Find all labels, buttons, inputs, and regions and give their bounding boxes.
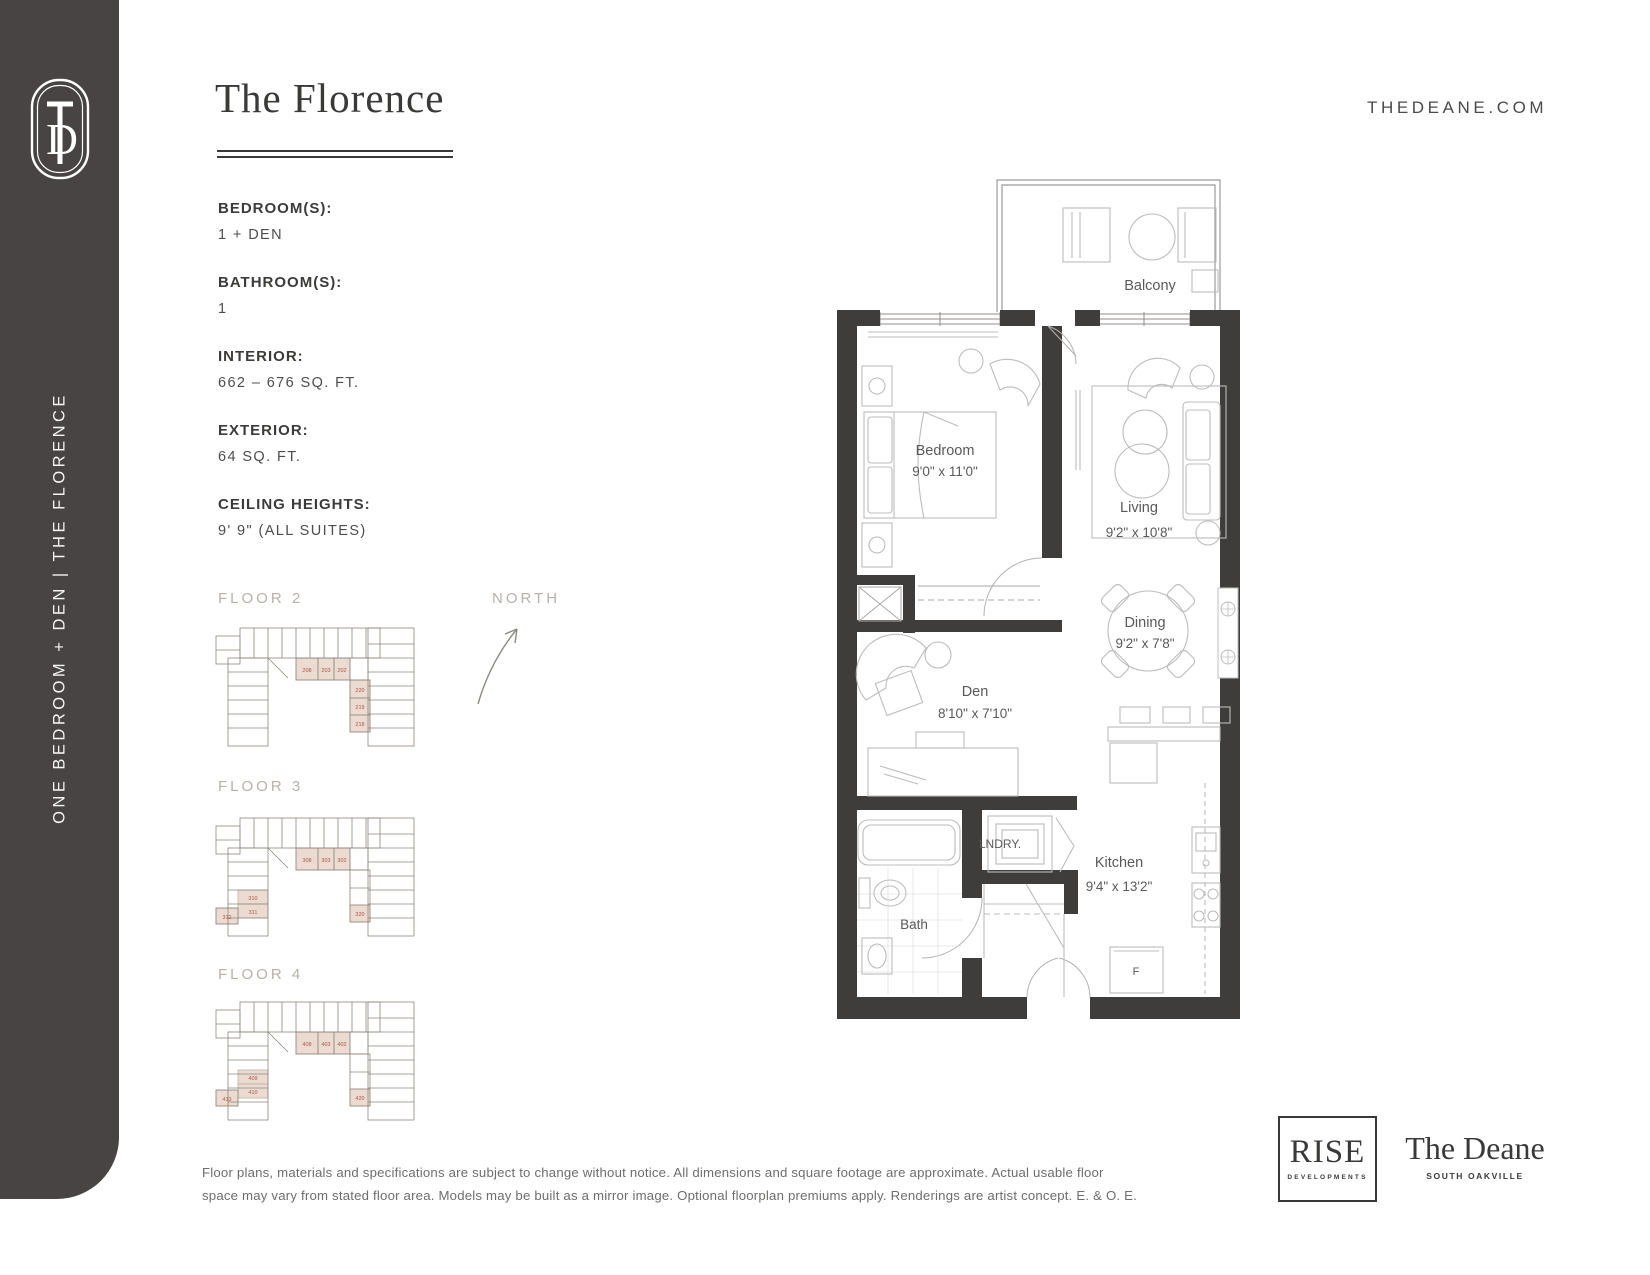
spec-bathrooms: BATHROOM(S): 1 bbox=[218, 274, 371, 317]
td-monogram-icon: D bbox=[30, 78, 90, 180]
dining-dims: 9'2" x 7'8" bbox=[1115, 636, 1174, 651]
rise-logo: RISE DEVELOPMENTS bbox=[1278, 1116, 1377, 1202]
svg-text:302: 302 bbox=[337, 858, 346, 864]
svg-text:208: 208 bbox=[302, 668, 311, 674]
spec-interior: INTERIOR: 662 – 676 SQ. FT. bbox=[218, 348, 371, 391]
balcony-label: Balcony bbox=[1124, 278, 1176, 294]
svg-text:320: 320 bbox=[355, 912, 364, 918]
living-dims: 9'2" x 10'8" bbox=[1106, 525, 1173, 540]
svg-text:413: 413 bbox=[222, 1097, 231, 1103]
svg-text:310: 310 bbox=[248, 896, 257, 902]
page-title: The Florence bbox=[215, 74, 444, 122]
rise-logo-sub: DEVELOPMENTS bbox=[1280, 1174, 1375, 1181]
bath-fixtures bbox=[857, 820, 962, 994]
svg-text:312: 312 bbox=[222, 915, 231, 921]
svg-text:403: 403 bbox=[321, 1042, 330, 1048]
spec-exterior: EXTERIOR: 64 SQ. FT. bbox=[218, 422, 371, 465]
disclaimer: Floor plans, materials and specification… bbox=[202, 1162, 1172, 1207]
bath-label: Bath bbox=[900, 917, 928, 932]
svg-text:420: 420 bbox=[355, 1096, 364, 1102]
shaft-closet bbox=[859, 586, 1040, 621]
svg-text:218: 218 bbox=[355, 722, 364, 728]
den-label: Den bbox=[962, 684, 989, 700]
balcony-walls bbox=[997, 180, 1220, 312]
floor-3-label: FLOOR 3 bbox=[218, 778, 303, 795]
deane-logo: The Deane SOUTH OAKVILLE bbox=[1404, 1130, 1546, 1181]
svg-text:219: 219 bbox=[355, 705, 364, 711]
svg-text:311: 311 bbox=[249, 910, 258, 916]
dining-furniture bbox=[1099, 582, 1196, 679]
title-divider bbox=[217, 150, 453, 158]
svg-text:402: 402 bbox=[337, 1042, 346, 1048]
sidebar-vertical-title: ONE BEDROOM + DEN | THE FLORENCE bbox=[51, 392, 70, 824]
dining-label: Dining bbox=[1124, 615, 1165, 631]
wall-niche bbox=[1218, 588, 1238, 678]
kitchen-dims: 9'4" x 13'2" bbox=[1086, 879, 1153, 894]
spec-ceiling: CEILING HEIGHTS: 9' 9" (ALL SUITES) bbox=[218, 496, 371, 539]
svg-text:203: 203 bbox=[321, 668, 330, 674]
spec-bedrooms: BEDROOM(S): 1 + DEN bbox=[218, 200, 371, 243]
walls bbox=[837, 310, 1240, 1019]
keyplan-floor-2: 208 203 202 220 219 218 bbox=[210, 622, 426, 752]
deane-logo-name: The Deane bbox=[1404, 1130, 1546, 1167]
living-label: Living bbox=[1120, 500, 1158, 516]
laundry-label: LNDRY. bbox=[979, 837, 1021, 851]
svg-text:409: 409 bbox=[248, 1076, 257, 1082]
brochure-page: D ONE BEDROOM + DEN | THE FLORENCE The F… bbox=[0, 0, 1650, 1275]
bedroom-label: Bedroom bbox=[916, 443, 975, 459]
floor-2-label: FLOOR 2 bbox=[218, 590, 303, 607]
den-dims: 8'10" x 7'10" bbox=[938, 706, 1012, 721]
keyplan-floor-4: 408 403 402 409 410 413 420 bbox=[210, 996, 426, 1126]
north-arrow-icon bbox=[470, 618, 530, 710]
sidebar: D ONE BEDROOM + DEN | THE FLORENCE bbox=[0, 0, 119, 1199]
rise-logo-name: RISE bbox=[1280, 1134, 1375, 1171]
floor-4-label: FLOOR 4 bbox=[218, 966, 303, 983]
kitchen-fixtures bbox=[1108, 707, 1230, 994]
living-furniture bbox=[1092, 358, 1226, 545]
deane-logo-sub: SOUTH OAKVILLE bbox=[1404, 1171, 1546, 1181]
fridge-label: F bbox=[1133, 966, 1140, 978]
disclaimer-line-2: space may vary from stated floor area. M… bbox=[202, 1185, 1172, 1208]
floorplan-drawing: Balcony Bedroom 9'0" x 11'0" Living 9'2"… bbox=[828, 168, 1242, 1020]
svg-text:D: D bbox=[46, 115, 78, 164]
kitchen-label: Kitchen bbox=[1095, 855, 1143, 871]
svg-text:408: 408 bbox=[302, 1042, 311, 1048]
svg-text:220: 220 bbox=[355, 688, 364, 694]
svg-text:308: 308 bbox=[302, 858, 311, 864]
bedroom-dims: 9'0" x 11'0" bbox=[912, 464, 978, 479]
svg-text:202: 202 bbox=[337, 668, 346, 674]
website-url: THEDEANE.COM bbox=[1367, 98, 1547, 118]
spec-list: BEDROOM(S): 1 + DEN BATHROOM(S): 1 INTER… bbox=[218, 200, 371, 570]
svg-text:303: 303 bbox=[321, 858, 330, 864]
disclaimer-line-1: Floor plans, materials and specification… bbox=[202, 1162, 1172, 1185]
keyplan-floor-3: 308 303 302 310 311 312 320 bbox=[210, 812, 426, 942]
svg-text:410: 410 bbox=[248, 1090, 257, 1096]
north-label: NORTH bbox=[492, 590, 560, 607]
